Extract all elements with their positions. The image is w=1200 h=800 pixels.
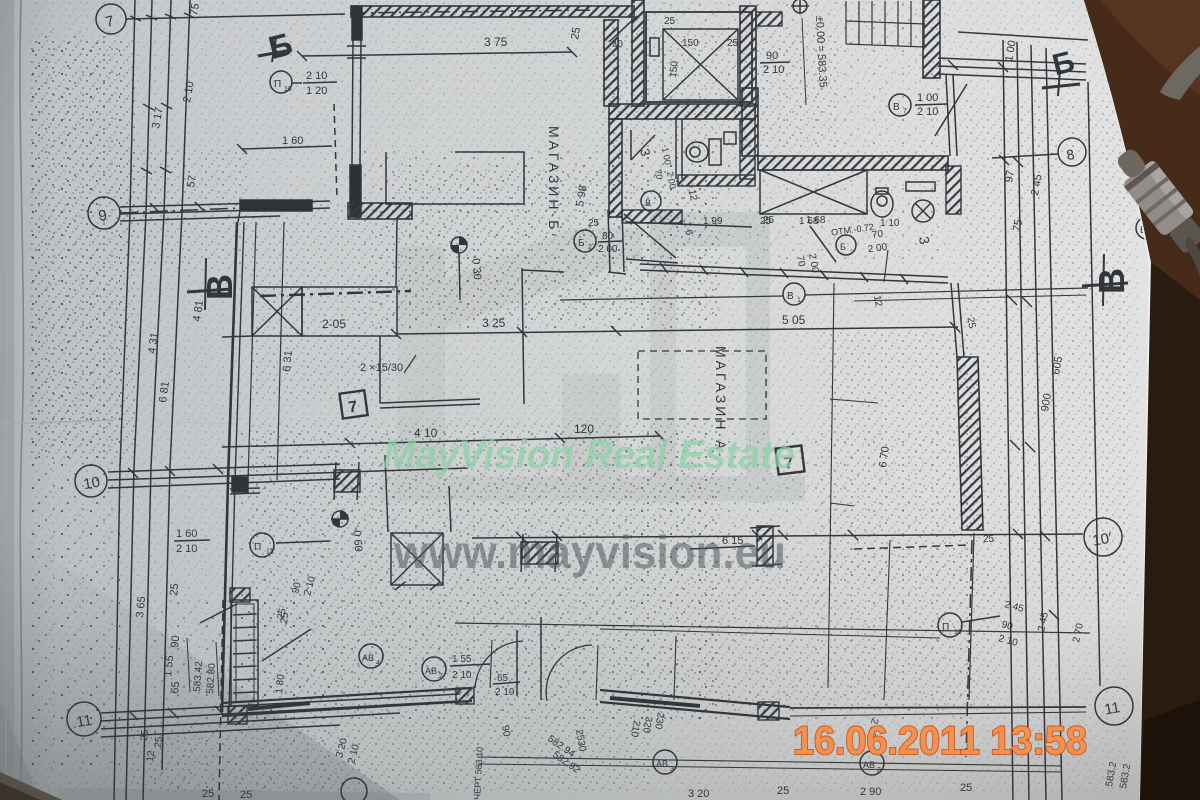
svg-text:25: 25 bbox=[279, 612, 291, 625]
svg-text:2: 2 bbox=[588, 244, 592, 251]
svg-text:25: 25 bbox=[983, 534, 995, 545]
svg-text:90: 90 bbox=[169, 635, 182, 648]
svg-text:П: П bbox=[274, 79, 281, 90]
svg-text:25: 25 bbox=[777, 785, 789, 797]
svg-text:В: В bbox=[645, 198, 651, 208]
svg-text:3 25: 3 25 bbox=[482, 316, 506, 330]
svg-text:1 60: 1 60 bbox=[176, 528, 197, 540]
svg-text:1 80: 1 80 bbox=[274, 673, 287, 694]
svg-text:25: 25 bbox=[202, 788, 214, 800]
svg-text:10′: 10′ bbox=[1091, 530, 1113, 550]
svg-text:В: В bbox=[1091, 268, 1132, 294]
svg-text:11: 11 bbox=[1103, 699, 1121, 718]
svg-text:3 65: 3 65 bbox=[134, 596, 148, 619]
svg-text:1: 1 bbox=[797, 297, 801, 304]
svg-text:АВ: АВ bbox=[362, 653, 374, 663]
svg-text:2 90: 2 90 bbox=[860, 786, 881, 798]
svg-text:1 60: 1 60 bbox=[282, 135, 303, 147]
svg-text:57: 57 bbox=[185, 174, 199, 188]
svg-text:25: 25 bbox=[168, 583, 181, 596]
svg-text:3 75: 3 75 bbox=[484, 35, 508, 49]
svg-text:70: 70 bbox=[871, 229, 884, 242]
svg-text:25: 25 bbox=[664, 16, 676, 27]
svg-text:25: 25 bbox=[153, 736, 165, 749]
svg-text:75: 75 bbox=[1011, 218, 1025, 232]
svg-text:Б: Б bbox=[578, 238, 585, 249]
svg-text:2: 2 bbox=[439, 673, 443, 680]
svg-text:2 10: 2 10 bbox=[763, 64, 784, 76]
svg-text:150: 150 bbox=[682, 38, 699, 49]
svg-text:70: 70 bbox=[653, 169, 665, 181]
svg-text:-0 30: -0 30 bbox=[469, 254, 483, 280]
svg-text:2 00: 2 00 bbox=[598, 244, 618, 255]
svg-text:25: 25 bbox=[763, 215, 775, 226]
svg-text:13: 13 bbox=[266, 549, 274, 556]
svg-text:1 55: 1 55 bbox=[162, 655, 176, 678]
svg-text:В: В bbox=[787, 291, 794, 302]
svg-text:25: 25 bbox=[960, 782, 972, 794]
svg-text:25: 25 bbox=[240, 789, 252, 800]
svg-text:150: 150 bbox=[668, 60, 680, 78]
svg-text:80: 80 bbox=[602, 231, 614, 242]
svg-text:2 10: 2 10 bbox=[917, 106, 938, 118]
svg-text:1 20: 1 20 bbox=[306, 85, 327, 97]
svg-text:1 55: 1 55 bbox=[452, 654, 472, 665]
svg-text:АВ: АВ bbox=[425, 666, 437, 676]
svg-text:2 10: 2 10 bbox=[306, 70, 327, 82]
svg-text:65: 65 bbox=[169, 681, 182, 694]
svg-text:16: 16 bbox=[284, 86, 292, 93]
svg-text:В: В bbox=[893, 102, 900, 113]
svg-text:10: 10 bbox=[82, 474, 101, 494]
svg-text:6 31: 6 31 bbox=[281, 350, 295, 372]
svg-text:АВ: АВ bbox=[656, 759, 668, 769]
svg-text:Б: Б bbox=[840, 242, 846, 252]
svg-text:12: 12 bbox=[145, 750, 157, 763]
svg-text:1 00: 1 00 bbox=[917, 92, 938, 104]
svg-text:2 ×15/30: 2 ×15/30 bbox=[360, 362, 403, 374]
svg-text:МАГАЗИН·Б·: МАГАЗИН·Б· bbox=[546, 126, 562, 240]
svg-text:19: 19 bbox=[954, 629, 962, 636]
svg-text:97: 97 bbox=[1003, 169, 1017, 183]
svg-text:25: 25 bbox=[588, 218, 600, 229]
svg-text:П: П bbox=[942, 622, 949, 633]
svg-text:www.mayvision.eu: www.mayvision.eu bbox=[393, 526, 786, 578]
svg-text:2 10: 2 10 bbox=[452, 670, 472, 681]
svg-text:1 68: 1 68 bbox=[806, 215, 826, 226]
svg-text:90: 90 bbox=[766, 50, 778, 62]
svg-text:582.80: 582.80 bbox=[205, 662, 218, 694]
svg-text:25: 25 bbox=[569, 26, 583, 40]
svg-text:1 10: 1 10 bbox=[880, 218, 900, 229]
svg-text:583.42: 583.42 bbox=[192, 660, 205, 692]
svg-text:7: 7 bbox=[903, 108, 907, 115]
svg-text:11: 11 bbox=[75, 712, 93, 731]
svg-text:75: 75 bbox=[188, 2, 202, 16]
svg-text:П: П bbox=[254, 542, 261, 553]
svg-text:4: 4 bbox=[376, 660, 380, 667]
svg-text:5 05: 5 05 bbox=[782, 313, 806, 327]
svg-text:MayVision Real Estate: MayVision Real Estate bbox=[383, 433, 795, 477]
svg-text:2 10: 2 10 bbox=[176, 543, 197, 555]
svg-text:16.06.2011 13:58: 16.06.2011 13:58 bbox=[793, 719, 1087, 763]
svg-text:2-05: 2-05 bbox=[322, 317, 346, 331]
svg-text:2: 2 bbox=[877, 767, 881, 774]
svg-text:3 20: 3 20 bbox=[688, 788, 709, 800]
svg-text:25: 25 bbox=[727, 38, 739, 49]
svg-text:-0 60: -0 60 bbox=[350, 526, 364, 552]
svg-text:2 10: 2 10 bbox=[495, 687, 515, 698]
